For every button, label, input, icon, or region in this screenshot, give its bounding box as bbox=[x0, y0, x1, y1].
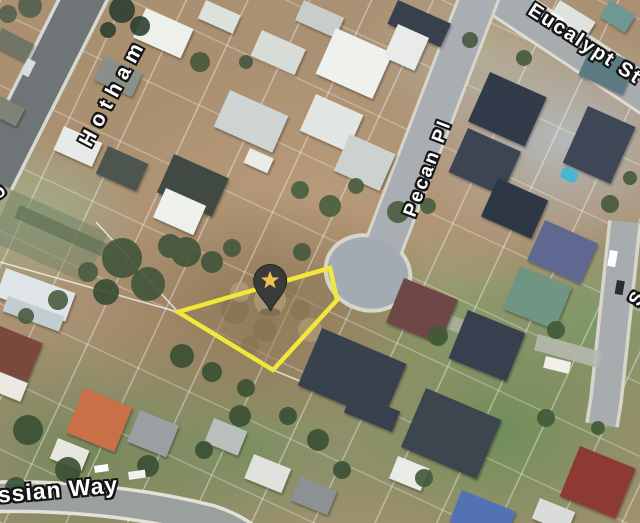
map-overlay bbox=[0, 0, 640, 523]
satellite-map[interactable]: Hotham Eucalypt St Pecan Pl ssian Way S … bbox=[0, 0, 640, 523]
star-location-pin[interactable] bbox=[254, 264, 287, 316]
pin-body bbox=[254, 264, 287, 311]
